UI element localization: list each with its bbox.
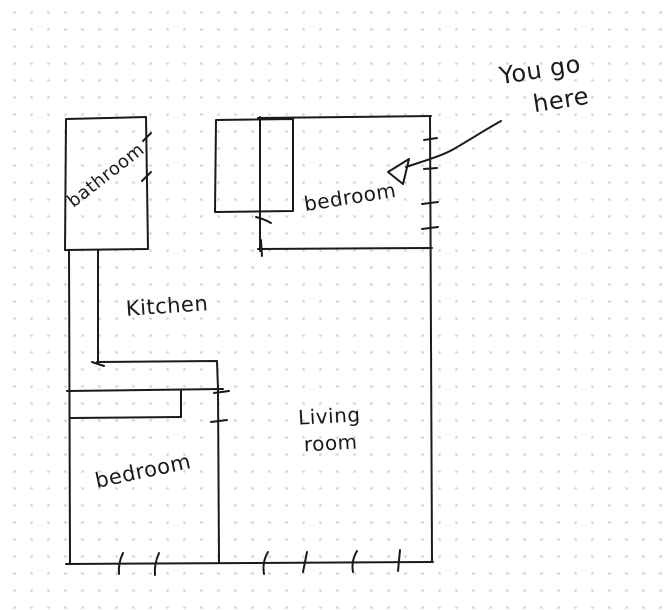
living-room-label: Living room: [287, 401, 374, 459]
sketch-canvas: bathroom Kitchen bedroom Living room bed…: [0, 0, 672, 610]
tick-mark: [214, 391, 229, 393]
tick-mark: [422, 202, 438, 204]
you-go-here-arrow: [388, 121, 501, 184]
bedroom-bottom-top-wall: [67, 389, 223, 391]
bottom-wall: [66, 562, 433, 564]
bedroom-top-closet: [215, 119, 293, 212]
kitchen-counter-ledge: [97, 361, 218, 389]
bedroom-bottom-closet-front: [71, 417, 181, 418]
bedroom-living-divider-wall: [218, 390, 219, 562]
tick-mark: [422, 227, 438, 229]
bedroom-top-bottom-wall: [258, 248, 432, 249]
right-wall: [430, 116, 432, 562]
left-wall: [69, 250, 70, 563]
living-room-label-line1: Living: [287, 401, 372, 432]
tick-mark: [256, 217, 271, 223]
living-room-label-line2: room: [288, 428, 373, 459]
bedroom-top-top-wall: [258, 116, 431, 118]
tick-mark: [424, 138, 437, 140]
tick-mark: [424, 168, 437, 169]
tick-mark: [261, 240, 262, 256]
tick-mark: [398, 550, 400, 571]
tick-mark: [211, 420, 227, 422]
arrow-curve: [406, 121, 501, 167]
